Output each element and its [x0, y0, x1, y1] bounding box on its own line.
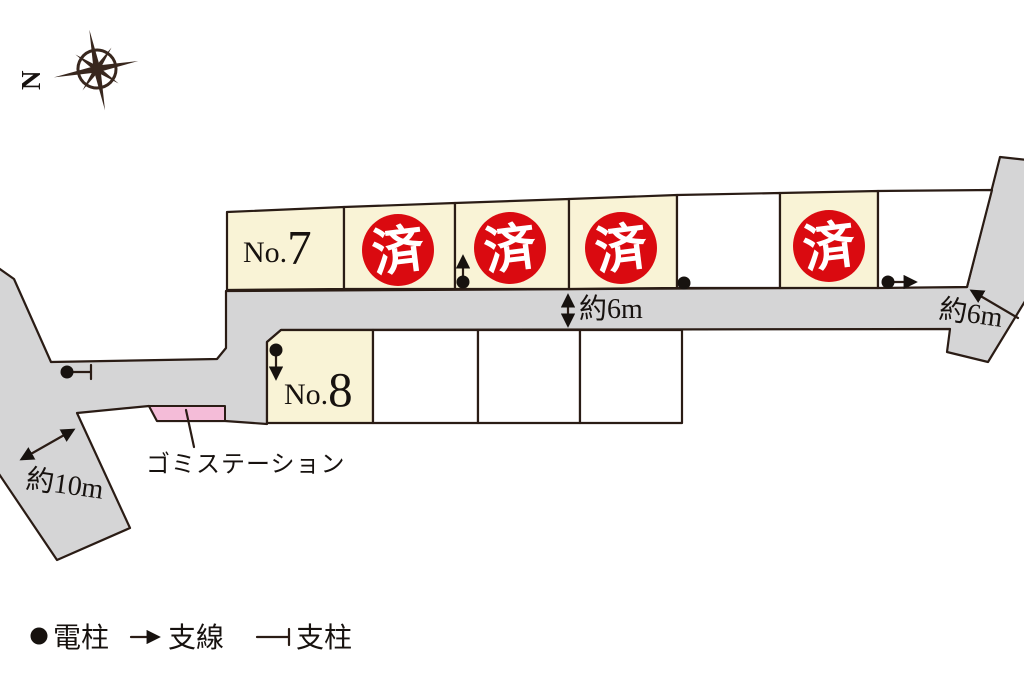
utility-pole-icon — [678, 277, 691, 290]
site-plan-drawing: No.7 済 済 済 済 No.8 — [0, 0, 1024, 682]
utility-pole-icon — [882, 276, 895, 289]
svg-text:済: 済 — [800, 215, 860, 281]
utility-pole-icon — [31, 628, 48, 645]
compass-rose: N — [16, 22, 146, 119]
lot-map-page: No.7 済 済 済 済 No.8 — [0, 0, 1024, 682]
sold-badge: 済 — [362, 214, 434, 286]
utility-pole-icon — [61, 366, 74, 379]
utility-pole-icon — [270, 344, 283, 357]
svg-text:済: 済 — [481, 217, 541, 283]
lot-vacant-4 — [478, 330, 580, 423]
sold-badge: 済 — [585, 212, 657, 284]
lot-vacant-1 — [677, 193, 780, 288]
support-pole-label: 支柱 — [296, 622, 352, 654]
support-pole-icon — [257, 629, 289, 645]
top-lot-row: No.7 済 済 済 済 — [227, 190, 992, 290]
utility-pole-icon — [457, 276, 470, 289]
north-label: N — [16, 70, 46, 90]
lot-vacant-3 — [373, 330, 478, 423]
guy-wire-label: 支線 — [168, 622, 224, 654]
utility-pole-label: 電柱 — [53, 622, 109, 654]
garbage-station-label: ゴミステーション — [146, 451, 346, 478]
legend-utility-pole: 電柱 — [31, 622, 110, 654]
legend-support-pole: 支柱 — [257, 622, 352, 654]
svg-text:済: 済 — [592, 217, 652, 283]
road-width-label-center: 約6m — [579, 293, 643, 325]
sold-badge: 済 — [474, 212, 546, 284]
map-legend: 電柱 支線 支柱 — [31, 622, 353, 654]
bottom-lot-row: No.8 — [267, 330, 682, 423]
sold-badge: 済 — [793, 210, 865, 282]
legend-guy-wire: 支線 — [131, 622, 224, 654]
svg-text:済: 済 — [369, 219, 429, 285]
lot-vacant-5 — [580, 330, 682, 423]
